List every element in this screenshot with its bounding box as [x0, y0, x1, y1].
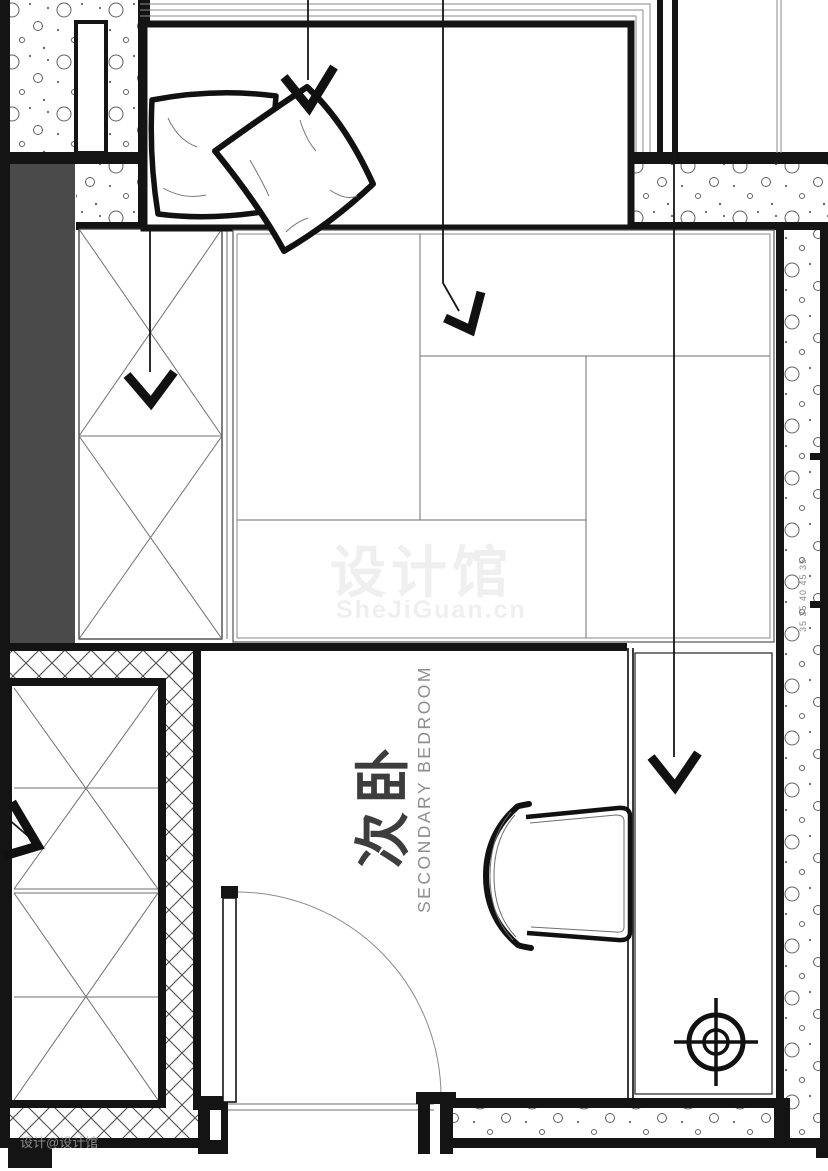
- watermark-corner: 设计@设计馆: [20, 1135, 98, 1150]
- door-jamb-right-leg-1: [418, 1104, 430, 1154]
- wall-annotation-text: 35 35 40 45 35: [798, 558, 808, 632]
- wall-bottom-left-step: [8, 1148, 52, 1168]
- door-jamb-left-slot: [210, 1110, 221, 1140]
- wall-crosshatch-band-bottom: [10, 1108, 200, 1138]
- window-mullion-1: [657, 0, 663, 156]
- door-jamb-right-leg-2: [440, 1104, 453, 1154]
- wardrobe-upper: [79, 229, 227, 639]
- wardrobe-lower: [8, 682, 162, 1104]
- wall-right-inner: [776, 230, 784, 1108]
- desk: [628, 648, 772, 1098]
- wall-bottom-bottom-line: [450, 1138, 828, 1148]
- desk-top: [635, 653, 772, 1094]
- wall-hatch-top-right: [630, 164, 828, 222]
- door-leaf-cap: [221, 886, 238, 898]
- right-window-tick-1: [810, 453, 828, 460]
- wall-column: [76, 22, 106, 153]
- floor-plan-drawing: 次卧 SECONDARY BEDROOM 35 35 40 45 35 设计馆 …: [0, 0, 828, 1171]
- wall-crosshatch-band-side: [163, 651, 193, 1108]
- door-leaf: [223, 898, 236, 1102]
- right-window-tick-2: [810, 601, 828, 608]
- wall-crosshatch-right-edge: [193, 643, 201, 1110]
- wall-bottom-top-line: [450, 1098, 782, 1108]
- wall-right-outer: [820, 230, 828, 1148]
- room-label-cn: 次卧: [352, 740, 415, 868]
- room-label-en: SECONDARY BEDROOM: [414, 665, 434, 913]
- wall-bottom-right-post: [774, 1098, 790, 1146]
- wall-bottom-right-step: [816, 1138, 828, 1158]
- wall-top-right-inner: [624, 222, 828, 230]
- wall-room-divider: [10, 643, 627, 651]
- floor-plan: 次卧 SECONDARY BEDROOM 35 35 40 45 35 设计馆 …: [0, 0, 828, 1171]
- window-mullion-2: [672, 0, 678, 156]
- watermark-title: 设计馆: [330, 541, 513, 604]
- wall-hatch-right: [784, 230, 820, 1148]
- watermark-url: SheJiGuan.cn: [336, 596, 527, 624]
- wall-top-right-outer: [624, 152, 828, 164]
- dark-wall-strip: [10, 164, 75, 645]
- door-jamb-right-top: [416, 1092, 456, 1104]
- wall-hatch-bottom: [452, 1108, 782, 1138]
- chair-seat: [526, 808, 630, 940]
- wall-hatch-left-pocket: [76, 162, 138, 222]
